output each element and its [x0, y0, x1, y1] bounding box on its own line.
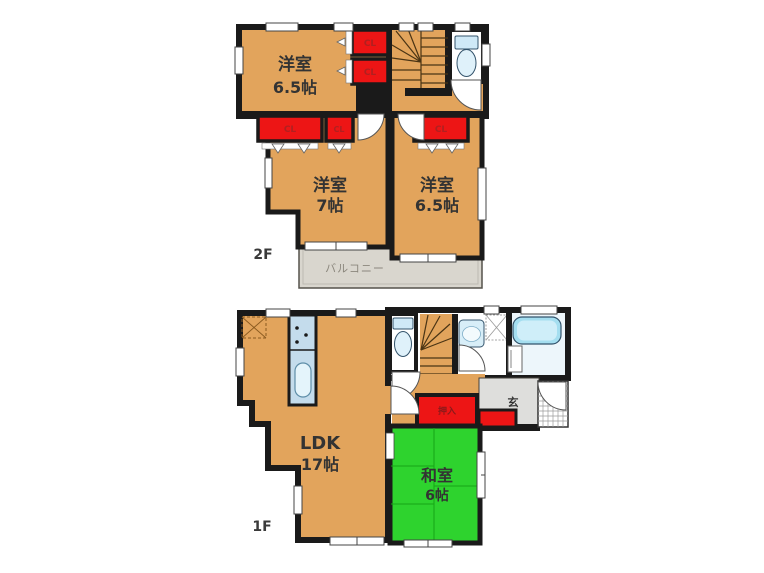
floor-2f: CL CL CL CL CL: [235, 23, 490, 288]
room-size-label-ldk: 17帖: [301, 455, 339, 474]
balcony-label: バルコニー: [325, 262, 385, 275]
floor-plan-page: CL CL CL CL CL: [0, 0, 764, 573]
closet-label: CL: [284, 125, 297, 135]
closet-label: CL: [334, 125, 345, 134]
closet-label: CL: [364, 39, 377, 49]
closet-label: CL: [364, 68, 377, 78]
toilet-icon-1f: [393, 318, 413, 357]
stove-burner: [295, 326, 299, 330]
floor-1f: LDK 17帖 和室 6帖 玄 押入 1F: [236, 306, 568, 547]
closet-label: CL: [435, 125, 448, 135]
oshiire-label: 押入: [438, 405, 456, 417]
closet-2f-west7: CL CL: [258, 116, 353, 153]
washing-machine-icon: [486, 315, 507, 340]
room-size-label: 6.5帖: [273, 78, 317, 97]
stove-burner: [295, 340, 299, 344]
bath-door: [508, 346, 522, 372]
entrance-label: 玄: [508, 395, 519, 409]
vanity-sink-icon: [459, 320, 484, 347]
room-size-label-washitsu: 6帖: [425, 487, 449, 504]
room-label: 洋室: [313, 175, 347, 196]
room-size-label: 7帖: [316, 196, 343, 215]
room-label: 洋室: [420, 175, 454, 196]
floor-2f-label: 2F: [253, 247, 272, 263]
washitsu-entry-opening: [386, 433, 394, 459]
kitchen-counter-icon: [289, 315, 316, 405]
room-label-washitsu: 和室: [421, 466, 453, 485]
bathtub-icon: [513, 317, 561, 344]
closet-hall-storage: [479, 410, 516, 427]
wall-2f-stub: [356, 84, 392, 114]
kitchen-sink: [295, 363, 311, 397]
room-size-label: 6.5帖: [415, 196, 459, 215]
room-label: 洋室: [278, 54, 312, 75]
room-label-ldk: LDK: [300, 433, 341, 454]
floor-plan-drawing: CL CL CL CL CL: [0, 0, 764, 573]
floor-1f-label: 1F: [252, 519, 271, 535]
toilet-icon-2f: [455, 36, 478, 77]
wall-2f-stair-stub: [405, 88, 451, 96]
stove-burner: [304, 333, 308, 337]
